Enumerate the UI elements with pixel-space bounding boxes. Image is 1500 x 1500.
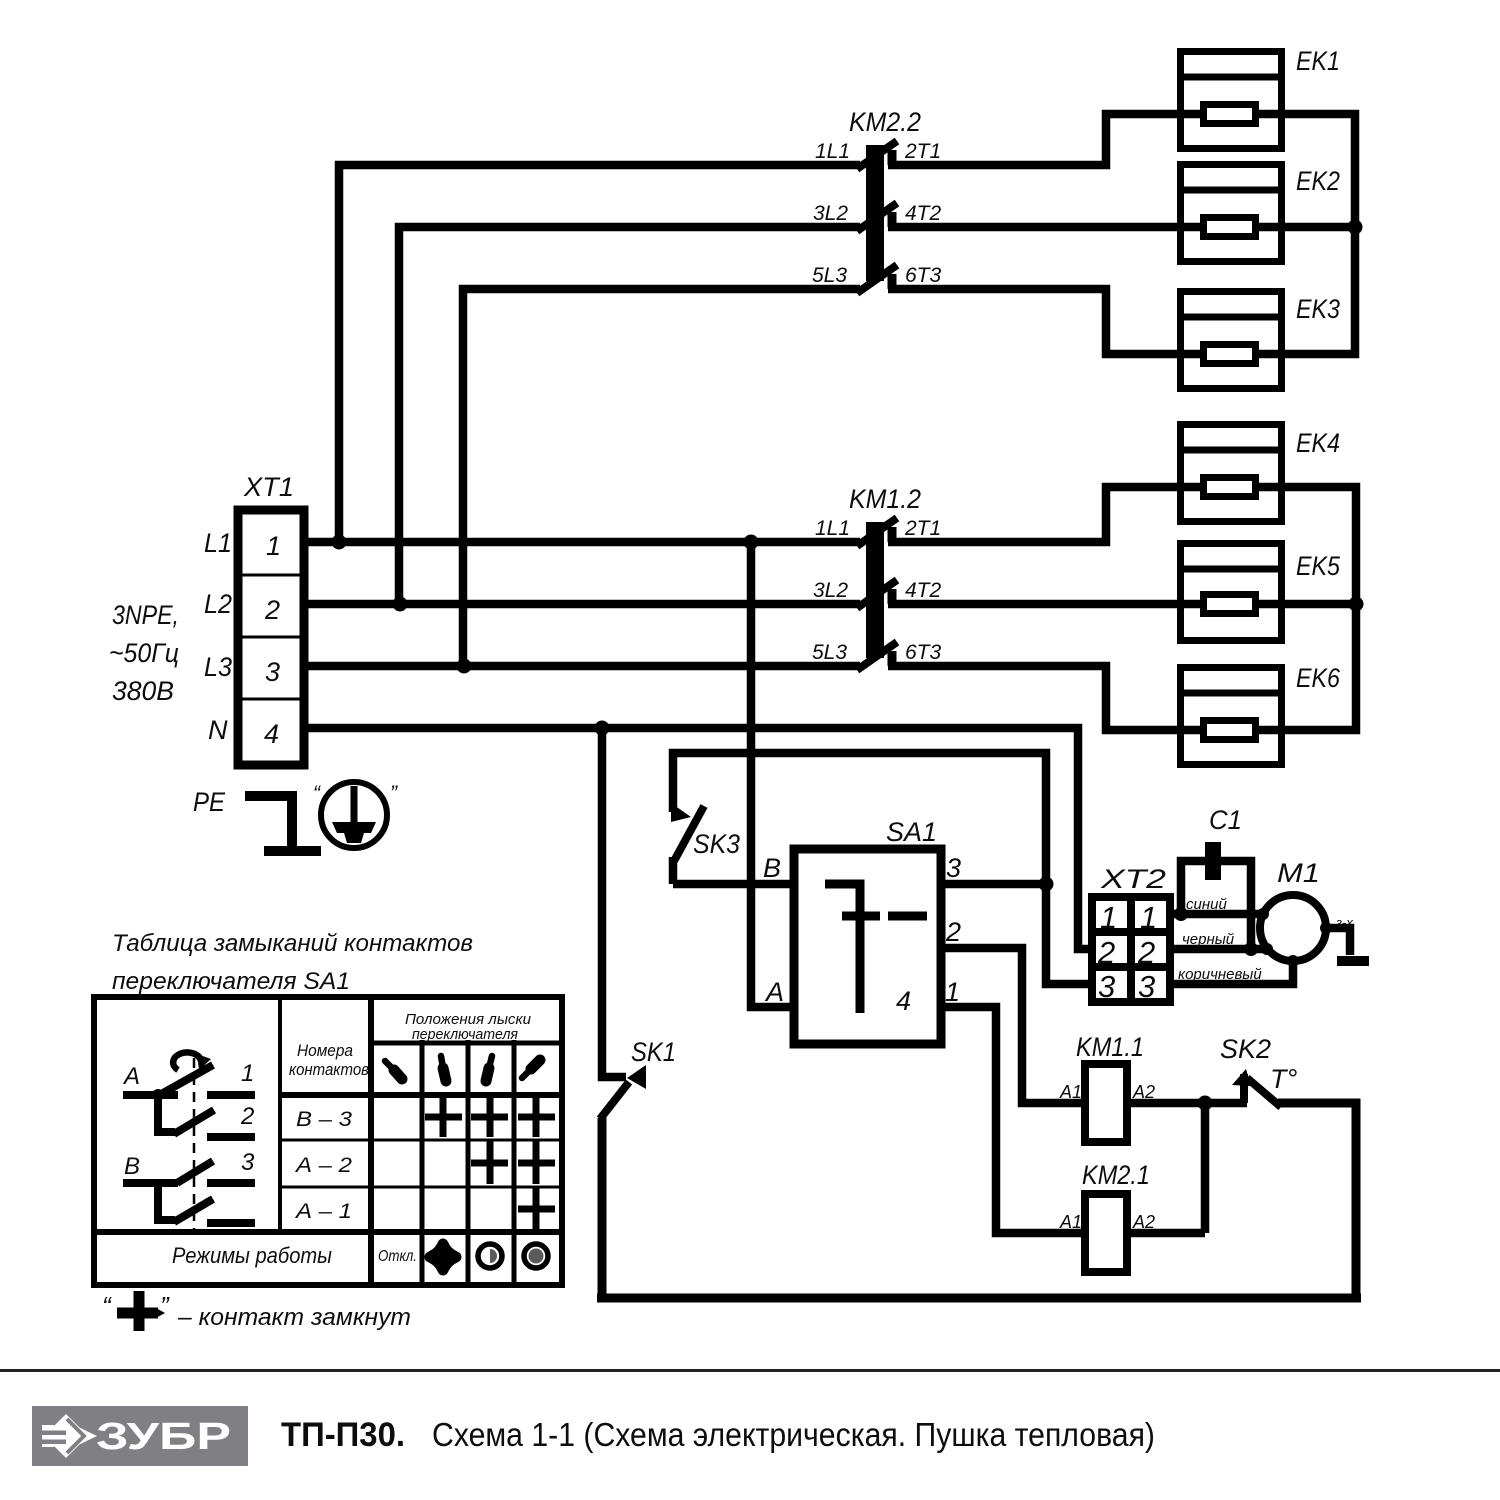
svg-text:4T2: 4T2 <box>905 202 942 225</box>
svg-text:Схема 1-1 (Схема электрическая: Схема 1-1 (Схема электрическая. Пушка те… <box>432 1416 1155 1453</box>
svg-text:Режимы работы: Режимы работы <box>172 1243 332 1268</box>
svg-text:2: 2 <box>1097 935 1115 970</box>
svg-text:B: B <box>124 1153 140 1180</box>
svg-text:3: 3 <box>265 657 280 687</box>
svg-text:T°: T° <box>1270 1064 1297 1094</box>
svg-text:3NPE,: 3NPE, <box>112 600 179 630</box>
svg-text:KM2.1: KM2.1 <box>1082 1160 1150 1190</box>
svg-text:4: 4 <box>264 719 279 749</box>
svg-text:переключателя: переключателя <box>412 1026 518 1043</box>
svg-text:В – 3: В – 3 <box>296 1108 352 1131</box>
svg-text:1: 1 <box>241 1060 254 1087</box>
svg-text:B: B <box>763 853 781 883</box>
svg-text:2: 2 <box>1137 935 1155 970</box>
svg-text:A: A <box>764 977 784 1007</box>
svg-text:контактов: контактов <box>289 1060 369 1079</box>
svg-text:1L1: 1L1 <box>815 140 850 163</box>
svg-text:L3: L3 <box>204 652 232 682</box>
svg-text:M1: M1 <box>1277 858 1320 888</box>
svg-text:синий: синий <box>1186 896 1227 913</box>
svg-text:– контакт замкнут: – контакт замкнут <box>177 1304 411 1331</box>
svg-text:~50Гц: ~50Гц <box>109 638 179 668</box>
svg-text:EK1: EK1 <box>1296 46 1340 76</box>
svg-text:2: 2 <box>264 595 280 625</box>
svg-text:SK3: SK3 <box>693 829 740 859</box>
svg-text:ТП-П30.: ТП-П30. <box>281 1416 405 1454</box>
svg-text:SA1: SA1 <box>886 817 937 847</box>
svg-text:A1: A1 <box>1059 1082 1082 1102</box>
svg-text:3: 3 <box>946 853 961 883</box>
svg-text:Номера: Номера <box>297 1041 353 1060</box>
svg-text:Таблица замыканий контактов: Таблица замыканий контактов <box>112 930 473 957</box>
svg-text:EK6: EK6 <box>1296 663 1341 693</box>
svg-text:1: 1 <box>1140 900 1157 935</box>
svg-text:XT2: XT2 <box>1100 864 1166 894</box>
svg-text:“: “ <box>102 1291 112 1321</box>
svg-text:KM2.2: KM2.2 <box>849 107 921 137</box>
svg-text:6T3: 6T3 <box>905 264 942 287</box>
svg-text:ЗУБР: ЗУБР <box>96 1416 231 1458</box>
svg-text:EK3: EK3 <box>1296 294 1340 324</box>
svg-text:коричневый: коричневый <box>1178 966 1262 983</box>
svg-text:3: 3 <box>1098 969 1115 1004</box>
svg-text:EK4: EK4 <box>1296 428 1340 458</box>
svg-text:A1: A1 <box>1059 1212 1082 1232</box>
svg-text:5L3: 5L3 <box>812 641 847 664</box>
svg-text:A: A <box>122 1063 140 1090</box>
svg-text:Откл.: Откл. <box>378 1248 417 1265</box>
svg-text:черный: черный <box>1182 931 1235 948</box>
svg-text:5L3: 5L3 <box>812 264 847 287</box>
svg-text:2T1: 2T1 <box>904 517 941 540</box>
svg-text:2: 2 <box>240 1103 254 1130</box>
svg-text:C1: C1 <box>1209 805 1242 835</box>
svg-text:4: 4 <box>896 986 911 1016</box>
svg-text:6T3: 6T3 <box>905 641 942 664</box>
svg-text:3L2: 3L2 <box>813 202 848 225</box>
svg-text:EK2: EK2 <box>1296 166 1340 196</box>
svg-text:А – 1: А – 1 <box>294 1200 352 1223</box>
svg-text:N: N <box>208 715 228 745</box>
svg-text:2: 2 <box>945 917 961 947</box>
svg-text:3: 3 <box>241 1149 255 1176</box>
svg-text:SK1: SK1 <box>631 1037 676 1067</box>
svg-text:KM1.1: KM1.1 <box>1076 1032 1144 1062</box>
svg-text:з-х: з-х <box>1335 915 1353 930</box>
svg-text:EK5: EK5 <box>1296 551 1341 581</box>
svg-text:А – 2: А – 2 <box>294 1154 353 1177</box>
svg-text:4T2: 4T2 <box>905 579 942 602</box>
svg-text:переключателя SA1: переключателя SA1 <box>112 968 350 995</box>
svg-text:380В: 380В <box>112 676 174 706</box>
svg-text:SK2: SK2 <box>1220 1034 1271 1064</box>
svg-text:”: ” <box>160 1291 170 1321</box>
svg-text:3L2: 3L2 <box>813 579 848 602</box>
svg-text:1: 1 <box>266 531 281 561</box>
svg-text:”: ” <box>390 782 398 805</box>
svg-text:3: 3 <box>1138 969 1155 1004</box>
svg-text:XT1: XT1 <box>243 472 294 502</box>
svg-text:L1: L1 <box>204 528 232 558</box>
svg-text:L2: L2 <box>204 589 232 619</box>
svg-text:1L1: 1L1 <box>815 517 850 540</box>
svg-text:KM1.2: KM1.2 <box>849 484 921 514</box>
svg-text:PE: PE <box>193 787 226 817</box>
svg-text:“: “ <box>313 782 321 805</box>
svg-text:2T1: 2T1 <box>904 140 941 163</box>
svg-text:1: 1 <box>1100 900 1117 935</box>
svg-text:1: 1 <box>945 977 960 1007</box>
